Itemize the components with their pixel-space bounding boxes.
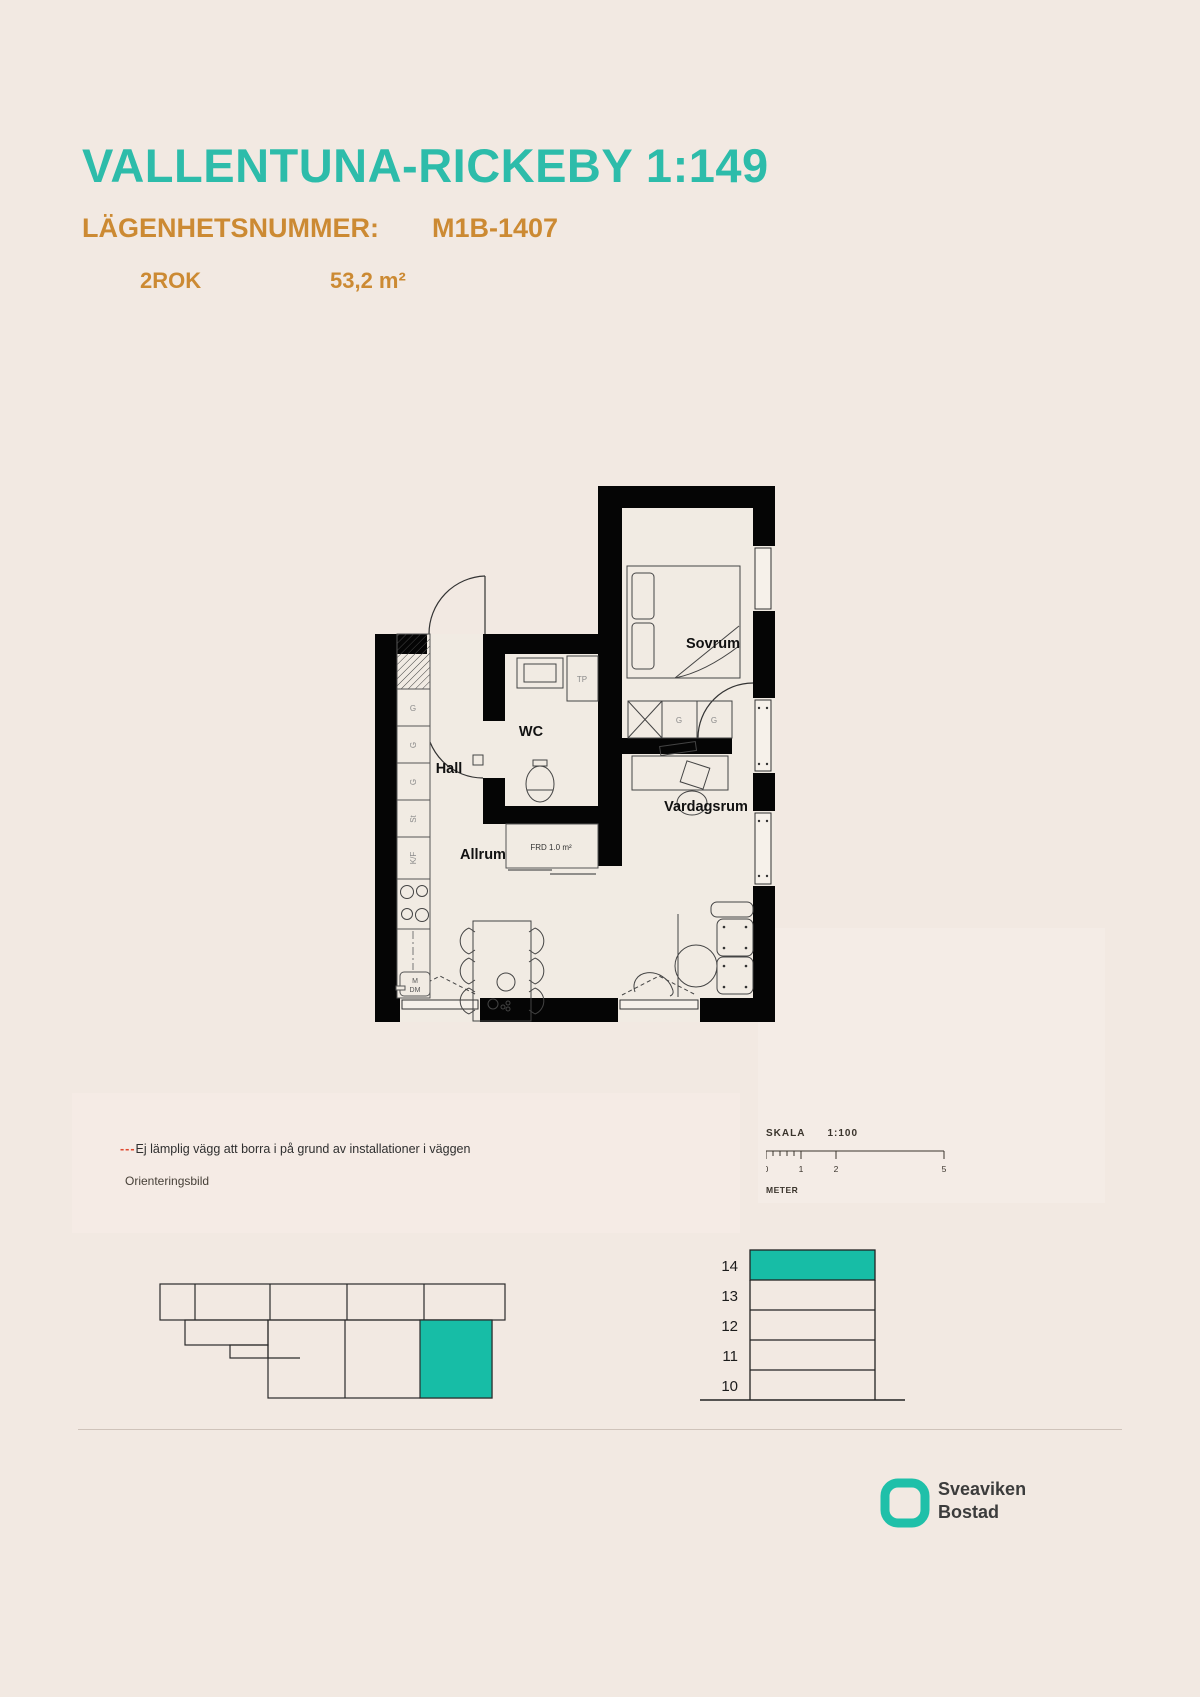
floor-label-10: 10 [721,1378,738,1395]
room-count: 2ROK [140,268,201,294]
footer-divider [78,1429,1122,1430]
logo-line1: Sveaviken [938,1478,1026,1501]
company-logo: Sveaviken Bostad [872,1472,1092,1542]
hall-wardrobe-hatched [397,634,430,689]
floorplan-svg: Sovrum Hall WC Vardagsrum Allrum TP FRD … [345,476,775,1022]
logo-line2: Bostad [938,1501,1026,1524]
room-label-sovrum: Sovrum [686,636,740,652]
floor-label-11: 11 [722,1348,738,1365]
scale-tick-0: 0 [766,1164,769,1174]
label-kf: K/F [409,852,418,865]
drilling-warning-note: ---Ej lämplig vägg att borra i på grund … [120,1142,470,1156]
window-allrum [402,1000,478,1009]
label-g3: G [409,779,418,785]
label-g1: G [410,704,416,713]
scale-label: SKALA [766,1128,805,1139]
room-label-wc: WC [519,724,544,740]
scale-tick-2: 2 [834,1164,839,1174]
scale-unit: METER [766,1185,798,1195]
label-wardrobe-g2: G [711,716,717,725]
spec-row: 2ROK 53,2 m² [140,268,740,298]
floor-label-14: 14 [721,1258,738,1275]
apartment-number-value: M1B-1407 [432,213,558,244]
note-background-panel [72,1093,740,1233]
window-balcony [620,1000,698,1009]
floor-label-13: 13 [721,1288,738,1305]
floor-label-12: 12 [721,1318,738,1335]
floor-level-indicator: 14 13 12 11 10 [690,1240,910,1410]
warning-dashes: --- [120,1142,136,1156]
scale-tick-5: 5 [942,1164,947,1174]
warning-text: Ej lämplig vägg att borra i på grund av … [136,1142,471,1156]
label-dm: DM [410,987,421,994]
label-g2: G [409,742,418,748]
area-value: 53,2 m² [330,268,406,294]
window-living-2 [755,813,771,884]
orientation-image-label: Orienteringsbild [125,1174,209,1188]
apartment-number-label: LÄGENHETSNUMMER: [82,213,379,244]
room-label-allrum: Allrum [460,847,506,863]
entrance-door-arc [429,576,485,634]
window-bedroom [755,548,771,609]
label-frd: FRD 1.0 m² [530,843,572,852]
highlighted-unit [420,1320,492,1398]
label-m: M [412,978,418,985]
scale-ruler: 0 1 2 5 METER [766,1145,966,1201]
scale-ratio: 1:100 [827,1128,858,1139]
floor-14-highlight [750,1250,875,1280]
window-living-1 [755,700,771,771]
label-st: St [409,814,418,822]
sveaviken-logo-icon [880,1478,930,1528]
scale-block: SKALA1:100 0 1 2 5 METER [766,1128,966,1206]
room-label-hall: Hall [436,761,463,777]
apartment-row: LÄGENHETSNUMMER: M1B-1407 [82,213,782,249]
building-footprint [150,1275,520,1415]
page-title: VALLENTUNA-RICKEBY 1:149 [82,138,769,193]
scale-tick-1: 1 [799,1164,804,1174]
room-label-vardagsrum: Vardagsrum [664,799,748,815]
label-tp: TP [577,675,587,684]
dishwasher-handle [396,986,405,990]
label-wardrobe-g1: G [676,716,682,725]
